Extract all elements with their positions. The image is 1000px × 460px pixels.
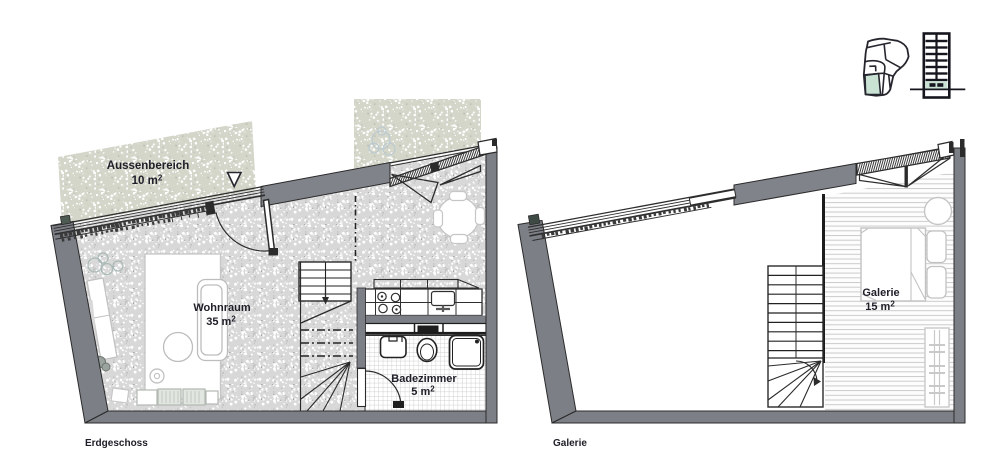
svg-text:Badezimmer: Badezimmer xyxy=(391,373,457,385)
svg-text:Wohnraum: Wohnraum xyxy=(193,302,250,314)
svg-text:Erdgeschoss: Erdgeschoss xyxy=(85,438,148,449)
svg-text:Galerie: Galerie xyxy=(553,438,587,449)
svg-text:Aussenbereich: Aussenbereich xyxy=(107,160,189,172)
svg-text:Galerie: Galerie xyxy=(862,287,899,299)
